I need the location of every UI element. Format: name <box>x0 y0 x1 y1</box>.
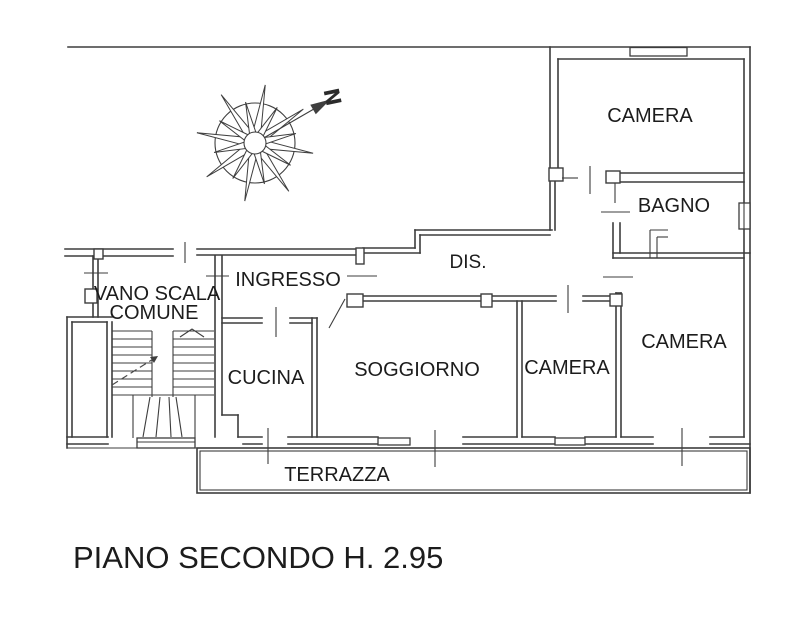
label-camera-centrale: CAMERA <box>524 357 610 379</box>
stairs <box>112 329 214 448</box>
corridor-walls <box>363 230 552 253</box>
stair-entry-step <box>137 438 195 448</box>
label-terrazza: TERRAZZA <box>284 464 390 486</box>
window-camera-centrale <box>555 438 585 445</box>
stair-direction-arrow <box>180 329 204 337</box>
compass-rose: N <box>196 84 345 202</box>
floor-plan-page: N CAMERA BAGNO DIS. INGRESSO VANO SCALA … <box>0 0 800 636</box>
label-comune: COMUNE <box>110 302 199 324</box>
label-camera-ne: CAMERA <box>607 105 693 127</box>
plan-title: PIANO SECONDO H. 2.95 <box>73 540 443 575</box>
terrace-outline <box>197 448 750 493</box>
label-cucina: CUCINA <box>228 367 305 389</box>
label-bagno: BAGNO <box>638 195 710 217</box>
label-ingresso: INGRESSO <box>235 269 341 291</box>
north-label: N <box>318 86 345 108</box>
entrance-door-swing <box>329 299 345 328</box>
label-soggiorno: SOGGIORNO <box>354 359 480 381</box>
label-camera-se: CAMERA <box>641 331 727 353</box>
window-soggiorno <box>378 438 410 445</box>
floor-plan-drawing: N CAMERA BAGNO DIS. INGRESSO VANO SCALA … <box>0 0 800 636</box>
doors <box>185 166 682 467</box>
window-ne-camera <box>630 48 687 57</box>
ne-block-walls <box>550 47 750 258</box>
label-dis: DIS. <box>450 252 487 273</box>
